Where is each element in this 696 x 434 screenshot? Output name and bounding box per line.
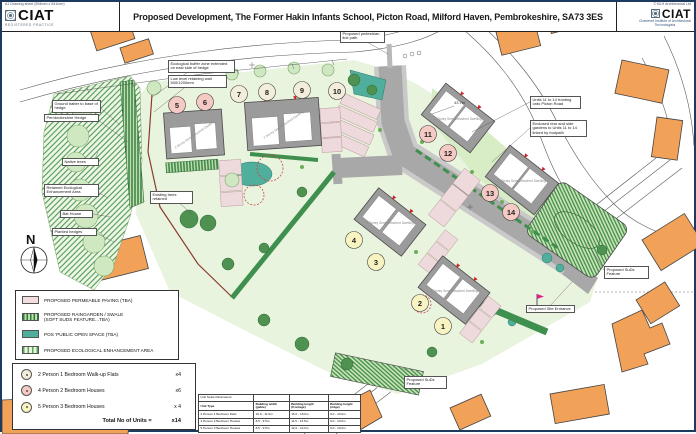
schedule-count: x4 [176,372,187,378]
north-label: N [26,232,35,247]
ciat-wordmark: CIAT [662,8,691,20]
drawing-title: Proposed Development, The Former Hakin I… [133,12,603,22]
legend-item-raingarden: PROPOSED RAINGARDEN / SWALE(SOFT SUDS FE… [22,312,172,322]
annotation-eco-buffer: Ecological buffer zone extended on east … [168,60,235,73]
legend-item-ecological: PROPOSED ECOLOGICAL ENHANCEMENT AREA [22,346,172,354]
svg-text:9: 9 [300,86,304,95]
schedule-label: 4 Person 2 Bedroom Houses [38,388,105,394]
schedule-row-3bed: 5 Person 3 Bedroom Houses x 4 [21,402,187,413]
svg-text:3: 3 [374,258,378,267]
schedule-row-2bed: 4 Person 2 Bedroom Houses x6 [21,385,187,396]
schedule-count: x 4 [174,404,187,410]
annotation-units-11-14: Units 11 to 14 fronting onto Picton Road [530,96,581,109]
ciat-logo-left: CIAT [5,8,116,23]
annotation-enclosed-gardens: Enclosed rear and side gardens to Units … [530,120,587,137]
svg-text:2: 2 [418,299,422,308]
ciat-logo-right: CIAT [620,8,691,20]
ciat-registered-practice: REGISTERED PRACTICE [5,23,116,27]
ecological-swatch [22,346,39,354]
building-label: 2 Storey Semi Detached Dwelling [430,289,478,293]
svg-text:10: 10 [333,87,341,96]
annotation-retaining-wall: Low level retaining wall 500/1200mm [168,75,227,88]
pos-swatch [22,330,39,338]
schedule-label: 5 Person 3 Bedroom Houses [38,404,105,410]
table-row: 2 Person 1 Bedroom Flats 10.0 - 11.0m 16… [199,411,361,418]
total-count: x14 [172,418,187,424]
legend-item-pos: POS 'PUBLIC OPEN SPACE (TBA) [22,330,172,338]
legend-label: POS 'PUBLIC OPEN SPACE (TBA) [44,332,118,337]
table-caption-row: Unit Scale Parameters: [199,395,361,402]
schedule-total-row: Total No of Units = x14 [21,418,187,424]
paving-swatch [22,296,39,304]
svg-text:12: 12 [444,149,452,158]
svg-text:6: 6 [203,98,207,107]
annotation-retained-eco: Retained Ecological Enhancement Area [44,184,99,197]
annotation-native-trees: Native trees [62,158,99,166]
title-block-left: A1 Drawing sheet (594mm x 841mm) CIAT RE… [2,2,120,31]
table-row: 5 Person 3 Bedroom Houses 8.5 - 9.5m 12.… [199,425,361,432]
schedule-count: x6 [176,388,187,394]
annotation-suds-bottom: Proposed SuDs Feature [404,376,447,389]
ciat-wordmark: CIAT [18,8,54,23]
svg-text:11: 11 [424,130,432,139]
annotation-pembrokeshire-hedge: Pembrokeshire Hedge [44,114,99,122]
drawing-sheet: 2 Storey Semi Detached Dwelling 2 Storey… [0,0,696,432]
svg-text:7: 7 [237,90,241,99]
legend: PROPOSED PERMEABLE PAVING (TBA) PROPOSED… [15,290,179,360]
ciat-subtitle: Chartered Institute of Architectural Tec… [639,20,691,27]
ciat-emblem-icon [651,9,660,18]
site-entrance-flag-icon [535,293,545,305]
annotation-bat-house: Bat House [60,210,93,218]
annotation-ground-batter: Ground batter to base of hedge [52,100,101,113]
unit-schedule: 2 Person 1 Bedroom Walk-up Flats x4 4 Pe… [12,363,196,430]
title-bar: A1 Drawing sheet (594mm x 841mm) CIAT RE… [2,2,694,32]
svg-text:8: 8 [265,88,269,97]
total-label: Total No of Units = [103,418,152,424]
table-caption: Unit Scale Parameters: [199,395,254,402]
svg-text:5: 5 [175,101,179,110]
building-label: 2 Storey Semi Detached Dwelling [366,221,414,225]
building-label: 2 Storey Semi Detached Dwelling [434,117,482,121]
svg-text:13: 13 [486,189,494,198]
svg-text:1: 1 [441,322,445,331]
svg-text:14: 14 [507,208,516,217]
annotation-site-entrance: Proposed Site Entrance [526,305,575,313]
annotation-existing-trees: Existing trees retained [150,191,193,204]
table-header-row: Unit Type Building width (gable) Buildin… [199,402,361,411]
title-block-right: © BLH Architectural Ltd CIAT Chartered I… [616,2,694,31]
house3-marker-icon [21,402,32,413]
legend-label: PROPOSED PERMEABLE PAVING (TBA) [44,298,132,303]
annotation-planted-hedges: Planted hedges [52,228,97,236]
schedule-label: 2 Person 1 Bedroom Walk-up Flats [38,372,119,378]
house2-marker-icon [21,385,32,396]
flat-marker-icon [21,369,32,380]
title-block-center: Proposed Development, The Former Hakin I… [120,2,616,31]
dimension-label: 43.7m [454,100,465,105]
annotation-suds-right: Proposed SuDs Feature [604,266,649,279]
unit-scale-parameters-table: Unit Scale Parameters: Unit Type Buildin… [198,394,361,433]
building-label: 2 Storey Semi Detached Dwelling [498,179,546,183]
legend-item-paving: PROPOSED PERMEABLE PAVING (TBA) [22,296,172,304]
legend-label: PROPOSED RAINGARDEN / SWALE(SOFT SUDS FE… [44,312,123,322]
ciat-emblem-icon [5,10,16,21]
legend-label: PROPOSED ECOLOGICAL ENHANCEMENT AREA [44,348,153,353]
table-row: 4 Person 2 Bedroom Houses 8.5 - 9.5m 11.… [199,418,361,425]
north-arrow: N [21,232,47,273]
raingarden-swatch [22,313,39,321]
schedule-row-flats: 2 Person 1 Bedroom Walk-up Flats x4 [21,369,187,380]
